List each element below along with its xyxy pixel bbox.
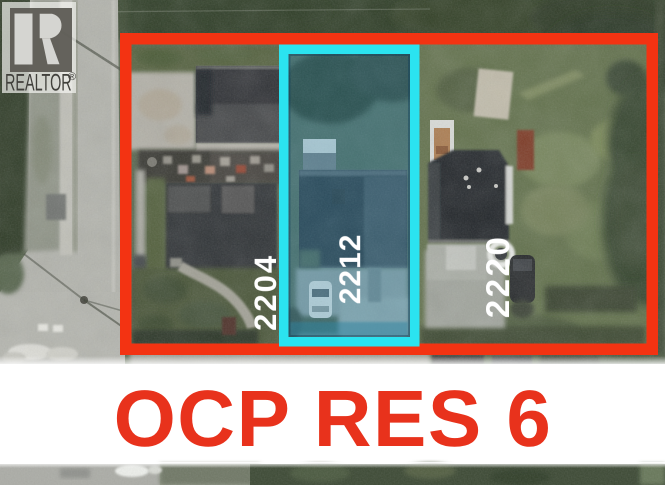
- svg-text:®: ®: [68, 71, 76, 83]
- svg-text:2204: 2204: [248, 254, 283, 331]
- svg-text:2220: 2220: [479, 235, 516, 318]
- svg-text:OCP RES 6: OCP RES 6: [114, 374, 553, 463]
- svg-text:2212: 2212: [334, 234, 367, 305]
- svg-text:REALTOR: REALTOR: [5, 70, 72, 97]
